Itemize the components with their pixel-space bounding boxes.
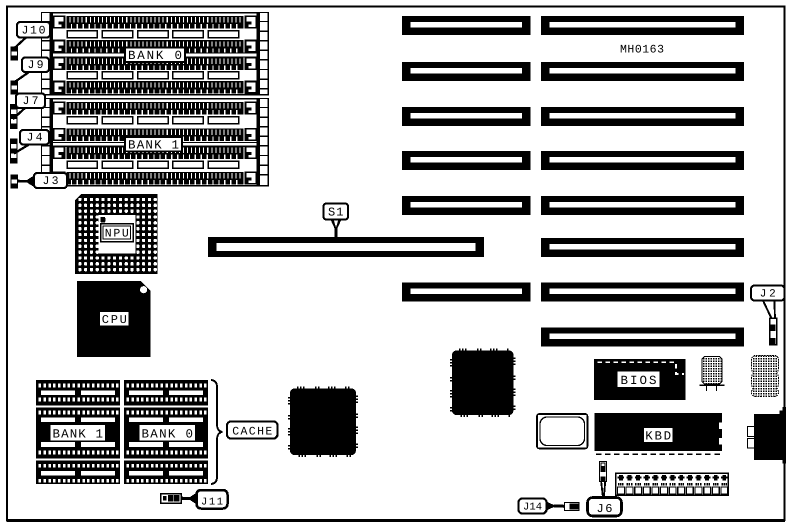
svg-text:J11: J11 xyxy=(201,497,223,509)
svg-text:MH0163: MH0163 xyxy=(620,44,664,57)
svg-text:J6: J6 xyxy=(597,502,613,516)
svg-text:CACHE: CACHE xyxy=(232,426,272,439)
svg-text:J10: J10 xyxy=(22,25,46,38)
svg-text:NPU: NPU xyxy=(105,228,129,241)
svg-text:BIOS: BIOS xyxy=(621,374,657,388)
svg-text:CPU: CPU xyxy=(102,313,127,327)
svg-text:S1: S1 xyxy=(328,206,344,220)
svg-text:J14: J14 xyxy=(523,502,542,514)
svg-text:KBD: KBD xyxy=(645,430,671,444)
